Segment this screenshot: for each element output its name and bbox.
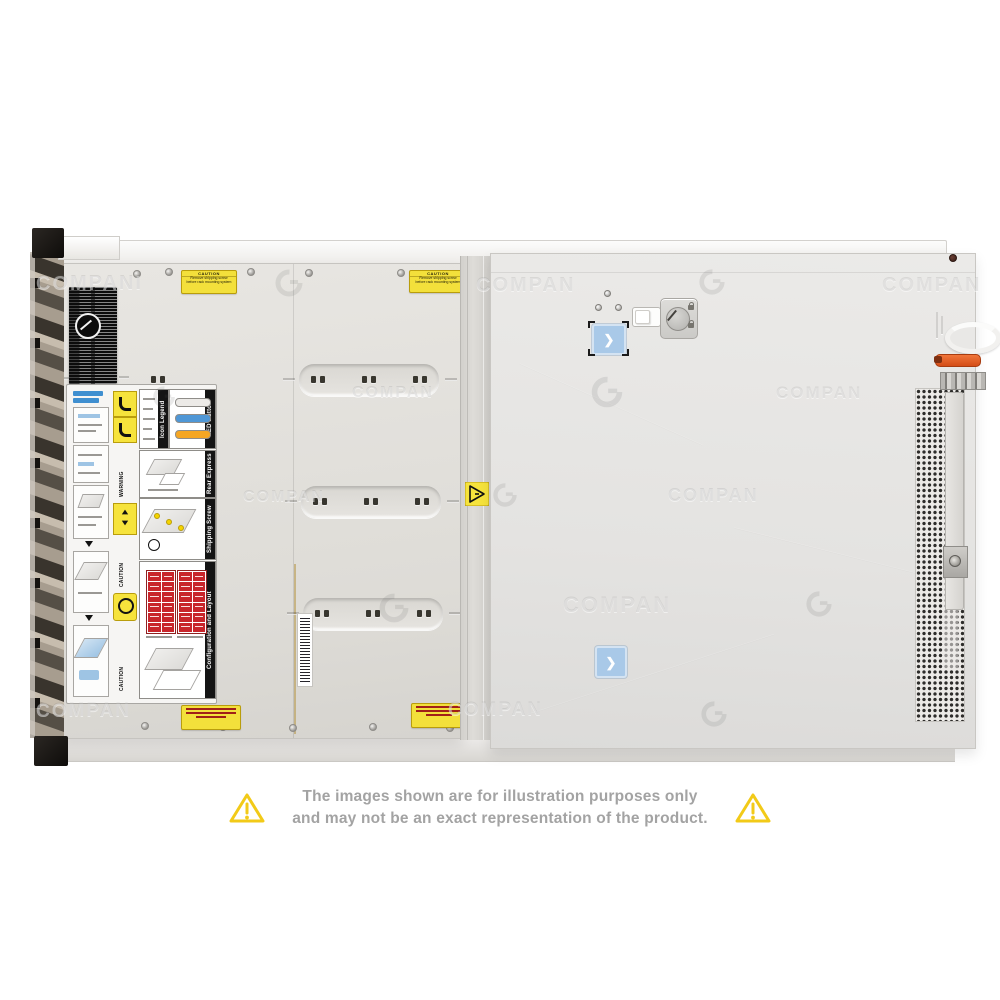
bracket-mark: [588, 321, 595, 328]
blue-release-button-top: ❯: [592, 324, 626, 355]
rack-ear-top-left: [32, 228, 64, 258]
cover-screw: [133, 270, 141, 278]
arrow-down-icon: [85, 541, 93, 547]
drive-bay-map: [146, 570, 176, 634]
bracket-mark: [622, 321, 629, 328]
cover-seam-gold: [294, 564, 296, 734]
caution-label-shipping-right: CAUTION Remove shipping screw before rac…: [409, 270, 467, 293]
warning-vertical-text: WARNING: [119, 445, 125, 497]
caution-vertical-text: CAUTION: [119, 625, 125, 691]
warning-sticker-cable: [113, 417, 137, 443]
section-title: Rear Express Service Tag: [205, 451, 215, 497]
cover-rivet: [615, 304, 622, 311]
warning-triangle-icon: [228, 791, 266, 825]
section-title: Icon Legend: [158, 390, 168, 448]
cover-screw: [397, 269, 405, 277]
section-icon-legend: Icon Legend: [139, 389, 169, 449]
front-drive-edge: [30, 252, 64, 738]
caution-vertical-text: CAUTION: [119, 537, 125, 587]
cover-keylock: [660, 298, 698, 339]
crease: [519, 363, 702, 445]
cover-screw: [369, 723, 377, 731]
cover-seam: [491, 272, 975, 273]
cover-screw: [165, 268, 173, 276]
caution-label-shipping-left: CAUTION Remove shipping screw before rac…: [181, 270, 237, 294]
disclaimer-line1: The images shown are for illustration pu…: [292, 786, 708, 808]
disclaimer-line2: and may not be an exact representation o…: [292, 808, 708, 830]
cover-screw: [247, 268, 255, 276]
product-photo: CAUTION Remove shipping screw before rac…: [0, 0, 1000, 1000]
caution-label-bottom-right: [411, 703, 467, 728]
warning-sticker-cable: [113, 391, 137, 417]
cover-screw: [289, 724, 297, 732]
screw-callout-dot: [166, 519, 172, 525]
etch-dash: [285, 500, 297, 503]
panel-diagram: [73, 551, 109, 613]
drive-bay-map: [177, 570, 207, 634]
embossed-mark: [941, 316, 943, 334]
section-shipping-screw-removal: Shipping Screw Removal: [139, 498, 216, 560]
cover-screw: [305, 269, 313, 277]
cover-handle-recess: [301, 486, 441, 518]
etch-dash: [445, 378, 457, 381]
crease: [527, 634, 775, 715]
caution-sticker-ring: [113, 593, 137, 621]
caution-line2: before rack mounting system: [182, 281, 236, 285]
cover-screw: [141, 722, 149, 730]
service-label-panel: WARNING CAUTION CAUTION Icon Legend: [66, 384, 217, 704]
bracket-mark: [588, 349, 595, 356]
server-top-view: CAUTION Remove shipping screw before rac…: [28, 226, 968, 771]
etch-dash: [119, 376, 129, 379]
rack-ear-bottom-left: [34, 736, 68, 766]
step-number-badge: [148, 539, 160, 551]
cover-rivet: [604, 290, 611, 297]
arrow-down-icon: [85, 615, 93, 621]
disclaimer: The images shown are for illustration pu…: [0, 786, 1000, 831]
section-configuration-and-layout: Configuration and Layout: [139, 561, 216, 699]
rear-thumbscrew-block: [943, 546, 968, 578]
cover-divider-strip: [460, 256, 492, 740]
section-title: Shipping Screw Removal: [205, 499, 215, 559]
psu-ring-handle: [945, 322, 1000, 354]
section-led-button-behavior: LED Button Behavior: [169, 389, 216, 449]
rear-connector-contacts: [940, 372, 986, 390]
bracket-mark: [622, 349, 629, 356]
orange-release-lever: [935, 354, 981, 367]
blue-release-button-bottom: ❯: [595, 646, 627, 678]
screw-callout-dot: [154, 513, 160, 519]
barcode-sticker: [297, 613, 313, 687]
right-top-cover: ❯ ❯: [490, 253, 976, 749]
panel-blue-header: [73, 391, 103, 396]
panel-diagram: [73, 445, 109, 483]
regulatory-label: [69, 287, 117, 384]
led-pill-blue: [175, 414, 211, 423]
vent-slot-pair: [151, 376, 165, 383]
chassis-front-left-step: [58, 236, 120, 260]
caution-sticker-chevron: [113, 503, 137, 535]
etch-dash: [447, 500, 459, 503]
cover-release-latch: [632, 307, 661, 327]
section-rear-express-service-tag: Rear Express Service Tag: [139, 450, 216, 498]
embossed-mark: [936, 312, 938, 338]
etch-dash: [283, 378, 295, 381]
chevron-right-icon: ❯: [606, 656, 617, 669]
cover-handle-recess: [303, 598, 443, 630]
panel-diagram: [73, 485, 109, 539]
panel-blue-header: [73, 398, 99, 403]
lock-icon: [688, 323, 694, 328]
chevron-right-icon: ❯: [604, 333, 615, 346]
led-pill-orange: [175, 430, 211, 439]
regulatory-emblem-icon: [75, 313, 101, 339]
cover-handle-recess: [299, 364, 439, 396]
led-pill-gray: [175, 398, 211, 407]
rear-screw: [949, 254, 957, 262]
caution-line2: before rack mounting system: [410, 281, 466, 285]
left-top-cover: CAUTION Remove shipping screw before rac…: [60, 263, 462, 739]
caution-label-bottom-left: [181, 705, 241, 730]
warning-triangle-icon: [734, 791, 772, 825]
panel-diagram: [73, 407, 109, 443]
unlock-icon: [688, 305, 694, 310]
screw-callout-dot: [178, 525, 184, 531]
warning-triangle-sticker: [465, 482, 489, 506]
panel-diagram: [73, 625, 109, 697]
cover-rivet: [595, 304, 602, 311]
